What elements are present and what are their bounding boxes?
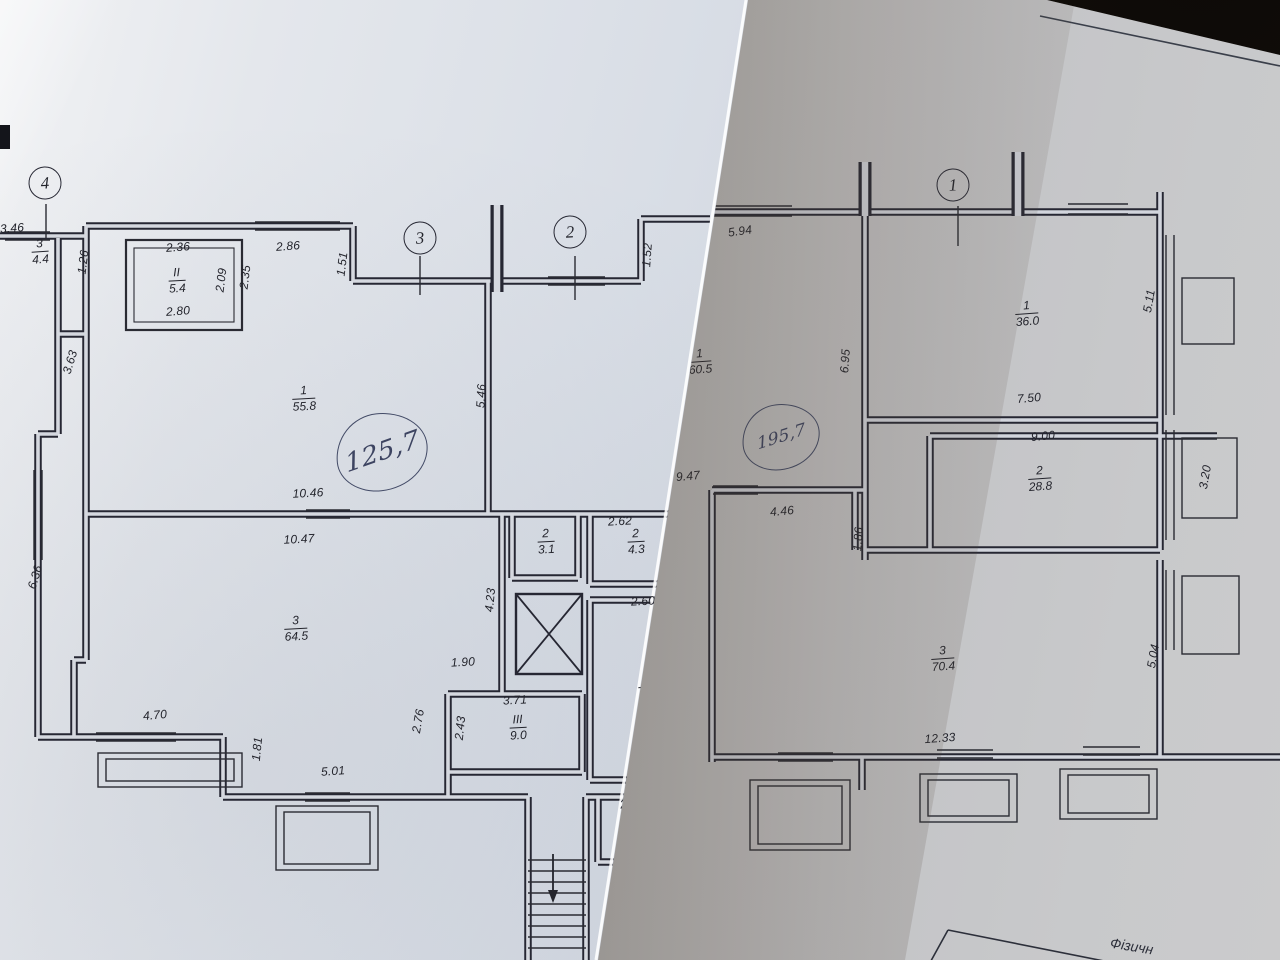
dimension-label: 2.35 [237,264,254,290]
room-number-area-label: 23.1 [537,527,555,557]
dimension-label: 5.11 [1140,288,1158,313]
dimension-label: 5.46 [473,384,488,409]
axis-marker-bubble: 3 [403,221,438,256]
dimension-label: 2.80 [165,303,190,319]
axis-marker-bubble: 2 [553,215,588,250]
dimension-label: 1.51 [334,251,351,277]
dimension-label: 7.50 [1016,390,1041,406]
dimension-label: 2.86 [275,238,300,254]
dimension-label: 4.23 [482,587,498,612]
dimension-label: 3.20 [1196,464,1214,490]
dimension-label: 3.63 [60,348,80,375]
dimension-label: 9.00 [1030,428,1055,444]
dimension-label: 2.76 [409,708,427,734]
room-number-area-label: III9.0 [509,713,527,743]
room-number-area-label: 34.4 [31,237,50,268]
dimension-label: 2.60 [631,593,656,608]
dimension-label: 2.09 [213,267,230,293]
dimension-label: 1.26 [75,249,92,275]
dimension-label: 6.36 [25,563,45,590]
dimension-label: 1.81 [249,736,265,761]
dimension-label: 3.71 [503,692,528,707]
dimension-label: 2.36 [165,239,190,255]
photo-of-floor-plans: 5.946.955.117.509.003.209.474.461.865.04… [0,0,1280,960]
room-number-area-label: 364.5 [284,614,309,645]
dimension-label: 3.46 [0,220,25,236]
dimension-label: 10.46 [292,485,324,501]
room-number-area-label: 24.3 [627,527,645,557]
dimension-label: 10.47 [283,531,315,547]
dimension-label: 2.62 [608,513,633,528]
dimension-label: 5.01 [320,763,345,779]
dimension-label: 1.90 [451,654,476,669]
dimension-label: 2.43 [452,715,468,740]
room-number-area-label: II5.4 [168,266,186,296]
room-number-area-label: 155.8 [292,384,317,415]
handwritten-total-annotation: 125,7 [332,408,432,495]
dimension-label: 4.70 [142,707,167,723]
axis-marker-bubble: 4 [28,166,63,201]
room-number-area-label: 228.8 [1027,463,1052,494]
dimension-label: 5.04 [1144,643,1162,669]
dimension-label: 1.52 [639,242,655,267]
